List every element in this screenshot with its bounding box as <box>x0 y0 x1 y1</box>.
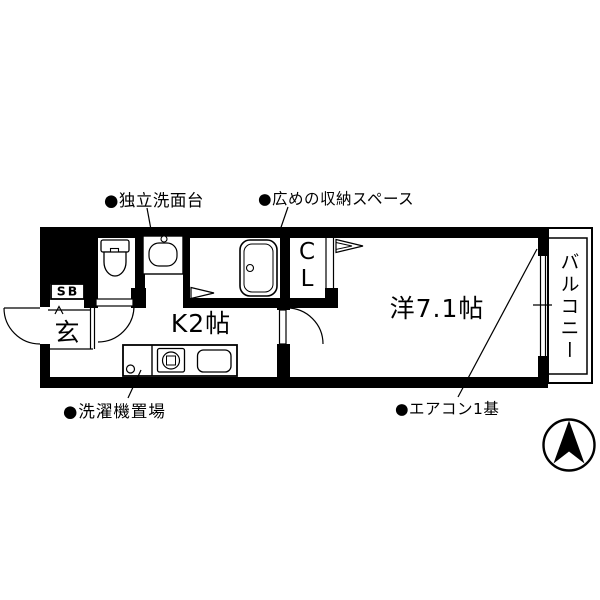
room-label-balcony: バルコニー <box>556 252 583 362</box>
floor-plan: ●独立洗面台 ●広めの収納スペース ●洗濯機置場 ●エアコン1基 K2帖 洋7.… <box>0 0 600 600</box>
room-door-icon <box>280 308 324 344</box>
closet-letter-c: C <box>299 239 315 266</box>
bathtub-icon <box>240 240 277 296</box>
floor-plan-drawing <box>0 0 600 600</box>
label-shoe-box: SB <box>57 284 80 299</box>
label-air-conditioner: ●エアコン1基 <box>395 397 499 419</box>
label-washing-machine-area: ●洗濯機置場 <box>63 398 166 422</box>
room-label-kitchen: K2帖 <box>171 304 231 340</box>
room-label-western-room: 洋7.1帖 <box>390 289 485 325</box>
washing-machine-tap-icon <box>127 365 135 373</box>
bath-door-icon <box>191 288 214 299</box>
entrance-door-icon <box>4 308 40 344</box>
label-washbasin: ●独立洗面台 <box>104 187 204 211</box>
sink-icon <box>198 350 232 372</box>
washbasin-icon <box>143 236 183 274</box>
toilet-door-icon <box>96 299 134 342</box>
room-label-closet: C L <box>299 239 315 293</box>
closet-letter-l: L <box>299 266 315 293</box>
north-arrow-compass-icon <box>544 420 595 471</box>
label-storage-space: ●広めの収納スペース <box>258 187 414 209</box>
closet-door-icon <box>326 236 363 290</box>
toilet-icon <box>101 240 129 276</box>
room-label-entrance: 玄 <box>54 313 79 349</box>
